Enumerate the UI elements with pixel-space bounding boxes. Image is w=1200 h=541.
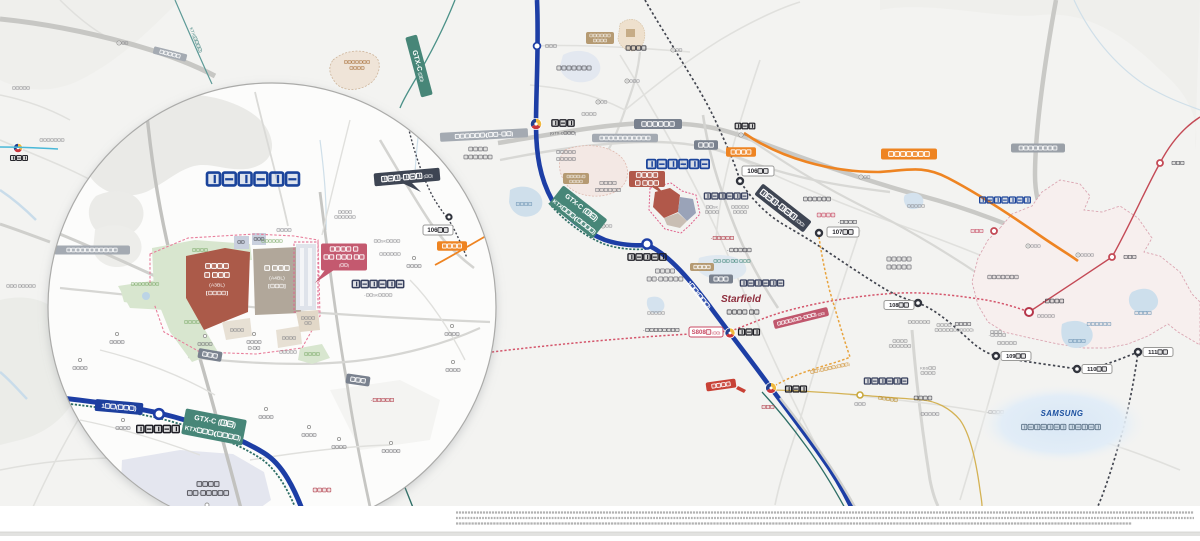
svg-text:107: 107 [832,230,843,236]
svg-text:109: 109 [1006,354,1015,360]
svg-text:~: ~ [498,132,501,138]
svg-text:·: · [252,345,253,350]
svg-text:106: 106 [747,169,758,175]
svg-text:SK: SK [713,205,719,209]
svg-text:]: ] [284,284,287,290]
svg-text:(GTX-C: (GTX-C [550,130,564,135]
svg-text:111: 111 [1148,350,1157,356]
svg-text:(A4BL): (A4BL) [269,276,285,282]
svg-text:·: · [198,490,200,497]
svg-text:]: ] [226,291,229,297]
svg-text:·: · [710,236,713,241]
svg-text:SK: SK [373,293,379,297]
svg-text:IC: IC [744,133,748,137]
svg-text:SAMSUNG: SAMSUNG [1041,409,1084,418]
svg-text:·: · [364,293,366,297]
svg-text:·: · [988,332,990,337]
svg-text:): ) [719,331,720,335]
svg-text:KBS: KBS [920,365,928,370]
svg-text:1: 1 [580,175,582,179]
svg-text:S808: S808 [692,330,707,336]
svg-text:106: 106 [427,228,438,234]
svg-text:110: 110 [1087,367,1096,373]
svg-text:108: 108 [889,303,898,309]
svg-text:SK: SK [381,239,387,243]
svg-text:(A3BL): (A3BL) [209,283,225,289]
svg-text:·: · [1042,299,1045,305]
svg-text:·: · [657,277,659,283]
svg-text:·: · [721,258,722,263]
svg-text:·: · [837,220,840,225]
svg-text:·: · [643,328,646,333]
svg-text:): ) [972,328,973,332]
svg-text:Starfield: Starfield [721,294,762,305]
svg-text:·: · [370,398,373,403]
